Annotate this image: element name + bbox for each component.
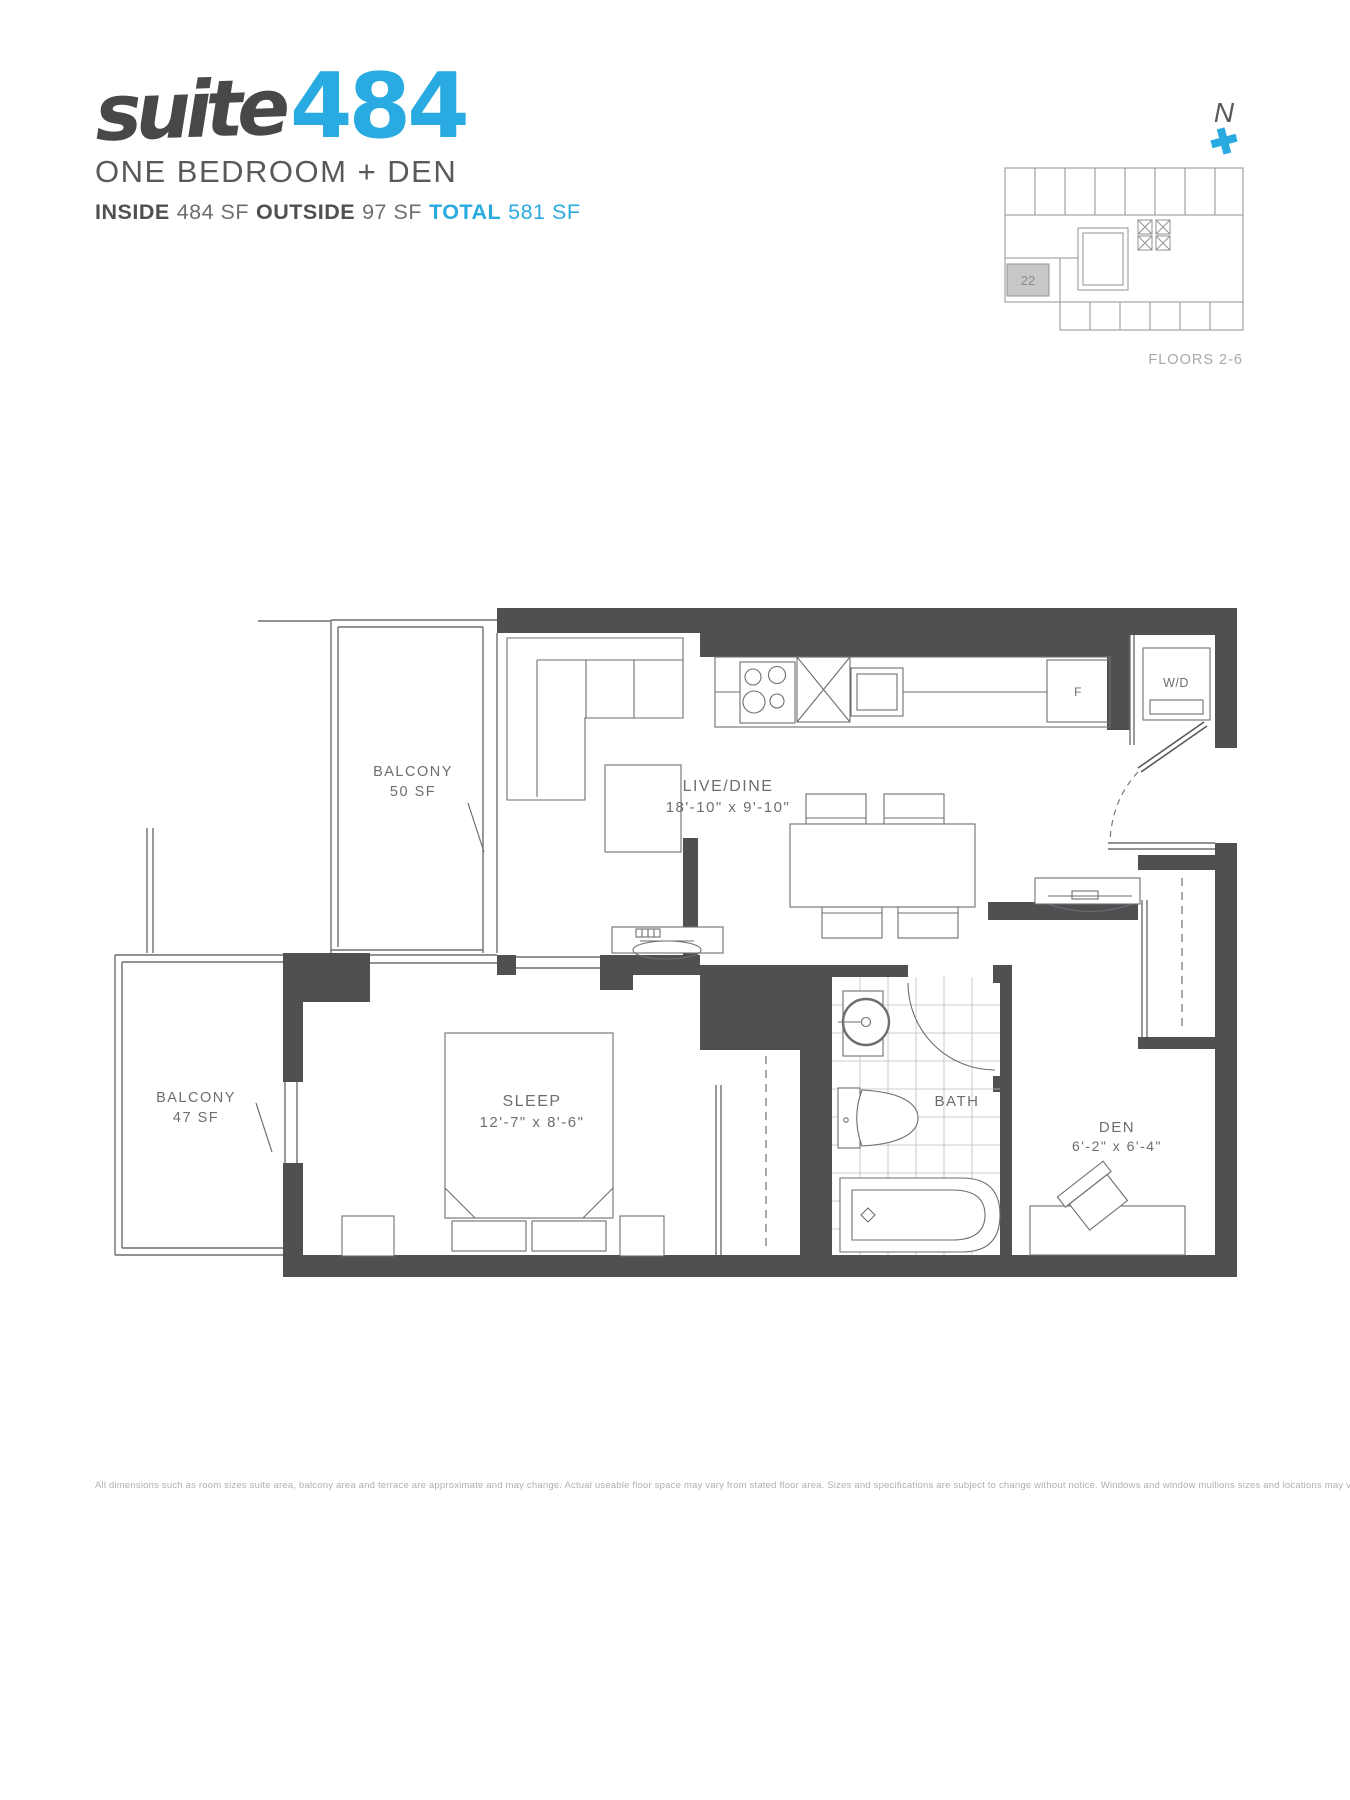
bath-door-arc [908,983,995,1070]
sleep-dims: 12'-7" x 8'-6" [480,1114,585,1131]
dining-chair [884,794,944,825]
washer-dryer-label: W/D [1163,676,1189,690]
sleep-label: SLEEP [502,1093,561,1110]
bedroom [342,1033,664,1256]
dishwasher-symbol [797,657,850,722]
dining-chair [806,794,866,825]
bathroom [832,977,1000,1255]
floorplan-sheet: N 22 FLOORS 2-6 [0,0,1350,1800]
pillow [452,1221,526,1251]
bath-label: BATH [935,1093,980,1110]
nightstand [342,1216,394,1256]
dining-chair [898,907,958,938]
tv-console-symbol [612,927,723,959]
bath-sink-symbol [838,991,889,1056]
north-label: N [1214,97,1235,128]
pillow [532,1221,606,1251]
den-label: DEN [1099,1119,1135,1136]
balcony-lower-area: 47 SF [173,1110,219,1126]
disclaimer-text: All dimensions such as room sizes suite … [95,1480,1275,1491]
dining-set [790,794,975,938]
balcony-upper-label: BALCONY [373,764,453,780]
bathtub-symbol [840,1178,1000,1252]
den [1030,1161,1185,1255]
kitchen-sink-symbol [851,668,903,716]
balcony-lower-label: BALCONY [156,1090,236,1106]
kitchen [715,657,1110,727]
floors-label: FLOORS 2-6 [1148,352,1243,368]
unit-number-label: 22 [1021,273,1035,288]
den-dims: 6'-2" x 6'-4" [1072,1138,1162,1154]
floorplan: BALCONY 50 SF BALCONY 47 SF LIVE/DINE 18… [115,608,1237,1277]
north-indicator: N [1208,97,1240,157]
live-dine-dims: 18'-10" x 9'-10" [666,799,791,816]
keyplan: 22 FLOORS 2-6 [1005,168,1243,368]
nightstand [620,1216,664,1256]
toilet-symbol [838,1088,918,1148]
entry-door [1110,722,1207,841]
live-dine-label: LIVE/DINE [683,778,774,795]
dining-chair [822,907,882,938]
balcony-upper-area: 50 SF [390,784,436,800]
dining-table-symbol [790,824,975,907]
north-plus-icon [1208,125,1240,157]
fridge-label: F [1074,685,1082,699]
